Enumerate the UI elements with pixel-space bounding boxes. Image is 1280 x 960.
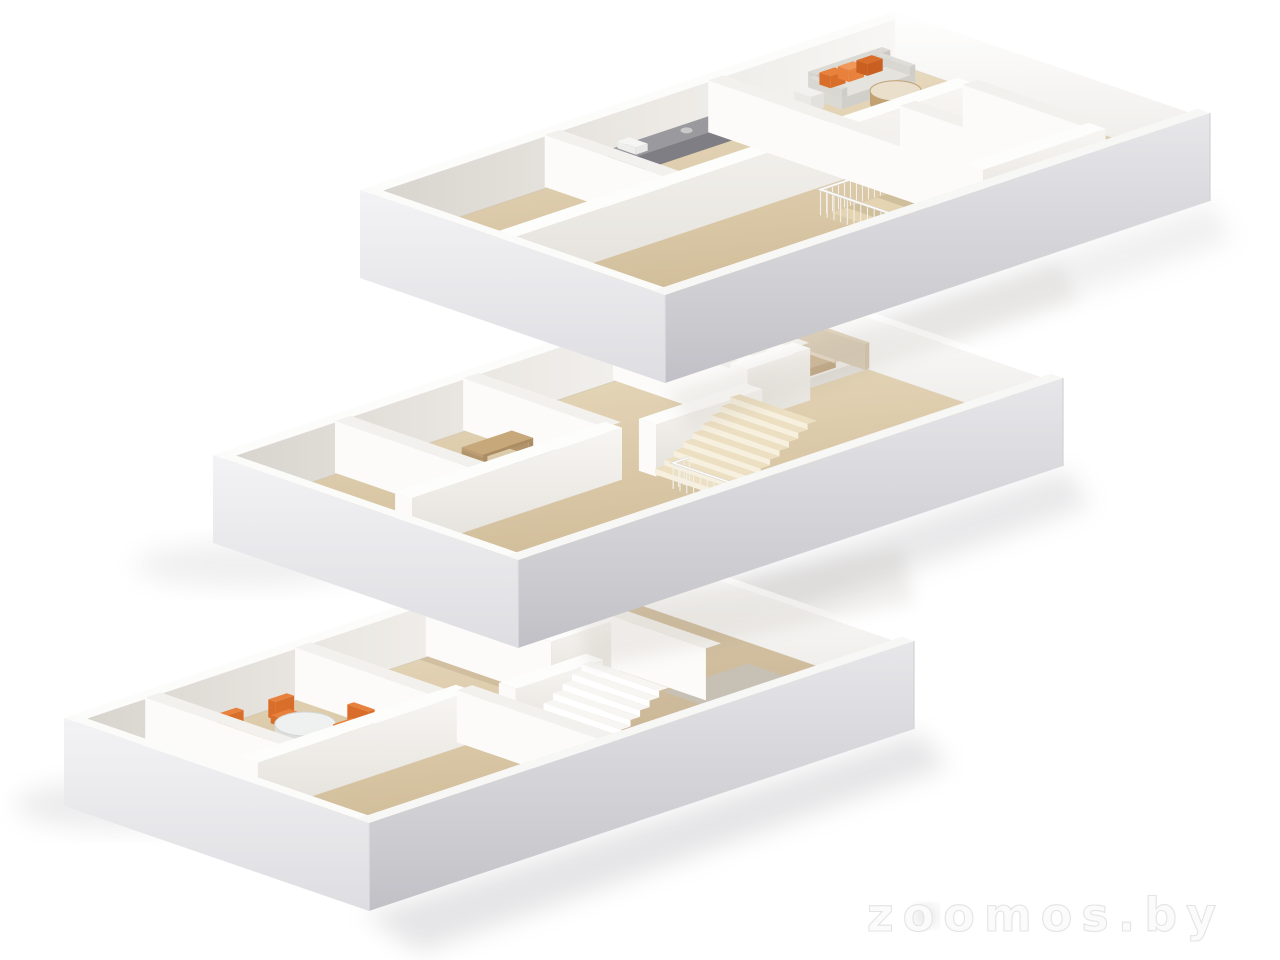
sofa-arm-right-front [910, 65, 915, 76]
page: { "meta": { "type": "3d-isometric-floor-… [0, 0, 1280, 960]
floor-plan-scene: zoomos.by [0, 0, 1280, 960]
counter-sink [681, 127, 693, 133]
floor-2-partition-end [639, 419, 656, 477]
sofa-arm-left-front [842, 87, 847, 98]
watermark: zoomos.by [867, 888, 1225, 942]
watermark-text: zoomos.by [867, 888, 1225, 942]
floor-plan-stage: zoomos.by [0, 0, 1280, 960]
